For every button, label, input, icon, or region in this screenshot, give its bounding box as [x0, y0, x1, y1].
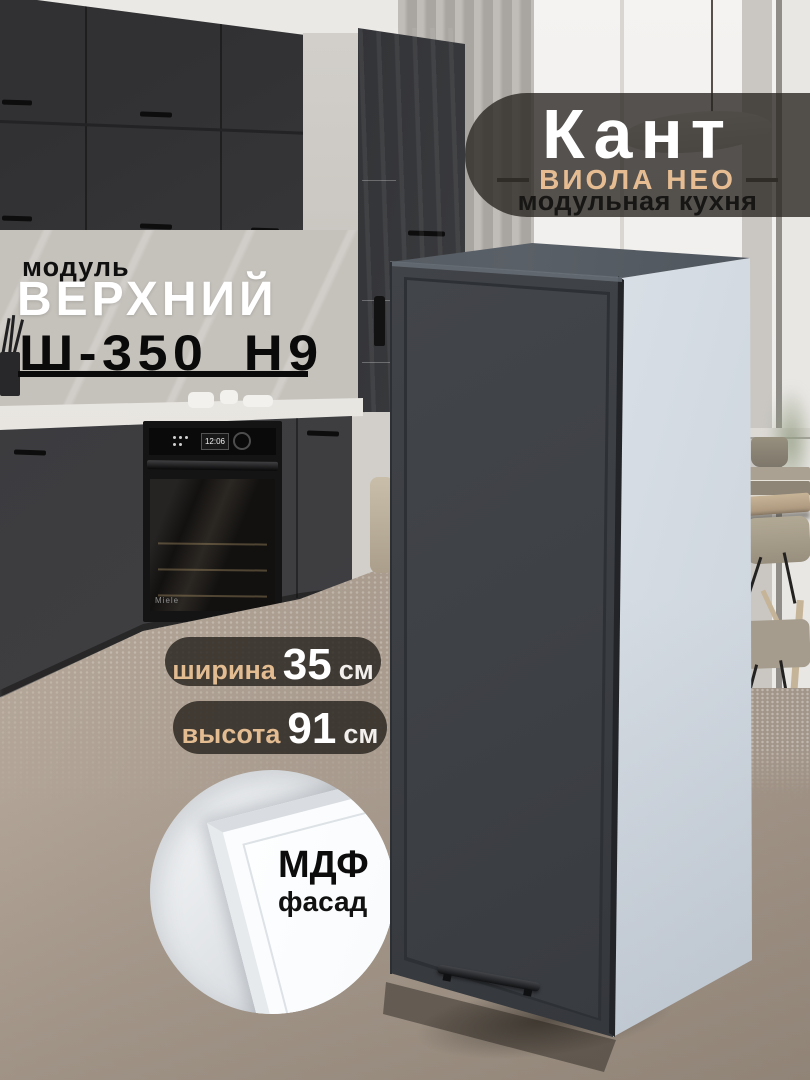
- book: [744, 467, 810, 482]
- dash-right: [746, 178, 778, 182]
- spec-badge-height: высота 91 см: [173, 701, 387, 754]
- oven-rack: [158, 568, 267, 571]
- oven-knob: [233, 432, 251, 450]
- jar: [243, 395, 273, 407]
- chair: [743, 619, 810, 669]
- knife-block: [0, 352, 20, 396]
- cabinet-handle: [140, 223, 172, 229]
- cabinet-handle: [2, 100, 32, 106]
- spec-value: 91: [287, 707, 336, 751]
- oven-button: [173, 436, 176, 439]
- module-name: ВЕРХНИЙ: [17, 276, 278, 324]
- oven-display: 12:06: [201, 433, 229, 450]
- chair: [745, 515, 810, 564]
- oven-door-glass: [150, 479, 275, 611]
- oven-button: [179, 436, 182, 439]
- material-circle: МДФ фасад: [150, 770, 394, 1014]
- cabinet-handle: [14, 449, 46, 455]
- brand-tagline: модульная кухня: [465, 188, 810, 215]
- brand-title: Кант: [465, 99, 810, 169]
- oven-button: [185, 436, 188, 439]
- jar: [188, 392, 214, 408]
- cabinet-row-line: [0, 120, 305, 135]
- dash-left: [497, 178, 529, 182]
- jar: [220, 390, 238, 404]
- spec-label: ширина: [172, 657, 276, 684]
- cabinet-handle: [307, 430, 339, 436]
- spec-badge-width: ширина 35 см: [165, 637, 381, 686]
- oven-rack: [158, 542, 267, 545]
- cabinet-handle: [140, 111, 172, 117]
- cabinet-seam: [296, 418, 298, 598]
- product-card: 12:06 Miele МДФ фасад: [0, 0, 810, 1080]
- material-title: МДФ: [278, 846, 369, 884]
- oven-handle: [147, 460, 278, 471]
- door-handle-post: [443, 973, 452, 981]
- door-handle-post: [523, 988, 532, 996]
- cabinet-left-edge: [390, 262, 392, 974]
- spec-label: высота: [182, 721, 281, 748]
- oven-brand: Miele: [155, 597, 179, 605]
- spec-value: 35: [283, 643, 332, 687]
- oven-button: [173, 443, 176, 446]
- module-code-underline: [18, 371, 308, 377]
- spec-unit: см: [339, 657, 374, 684]
- oven: 12:06 Miele: [143, 421, 282, 622]
- cabinet-handle: [2, 216, 32, 222]
- spec-unit: см: [343, 721, 378, 748]
- oven-clock: 12:06: [205, 438, 225, 446]
- oven-button: [179, 443, 182, 446]
- cabinet-seam: [85, 6, 87, 234]
- material-subtitle: фасад: [278, 888, 367, 916]
- pot: [751, 437, 788, 467]
